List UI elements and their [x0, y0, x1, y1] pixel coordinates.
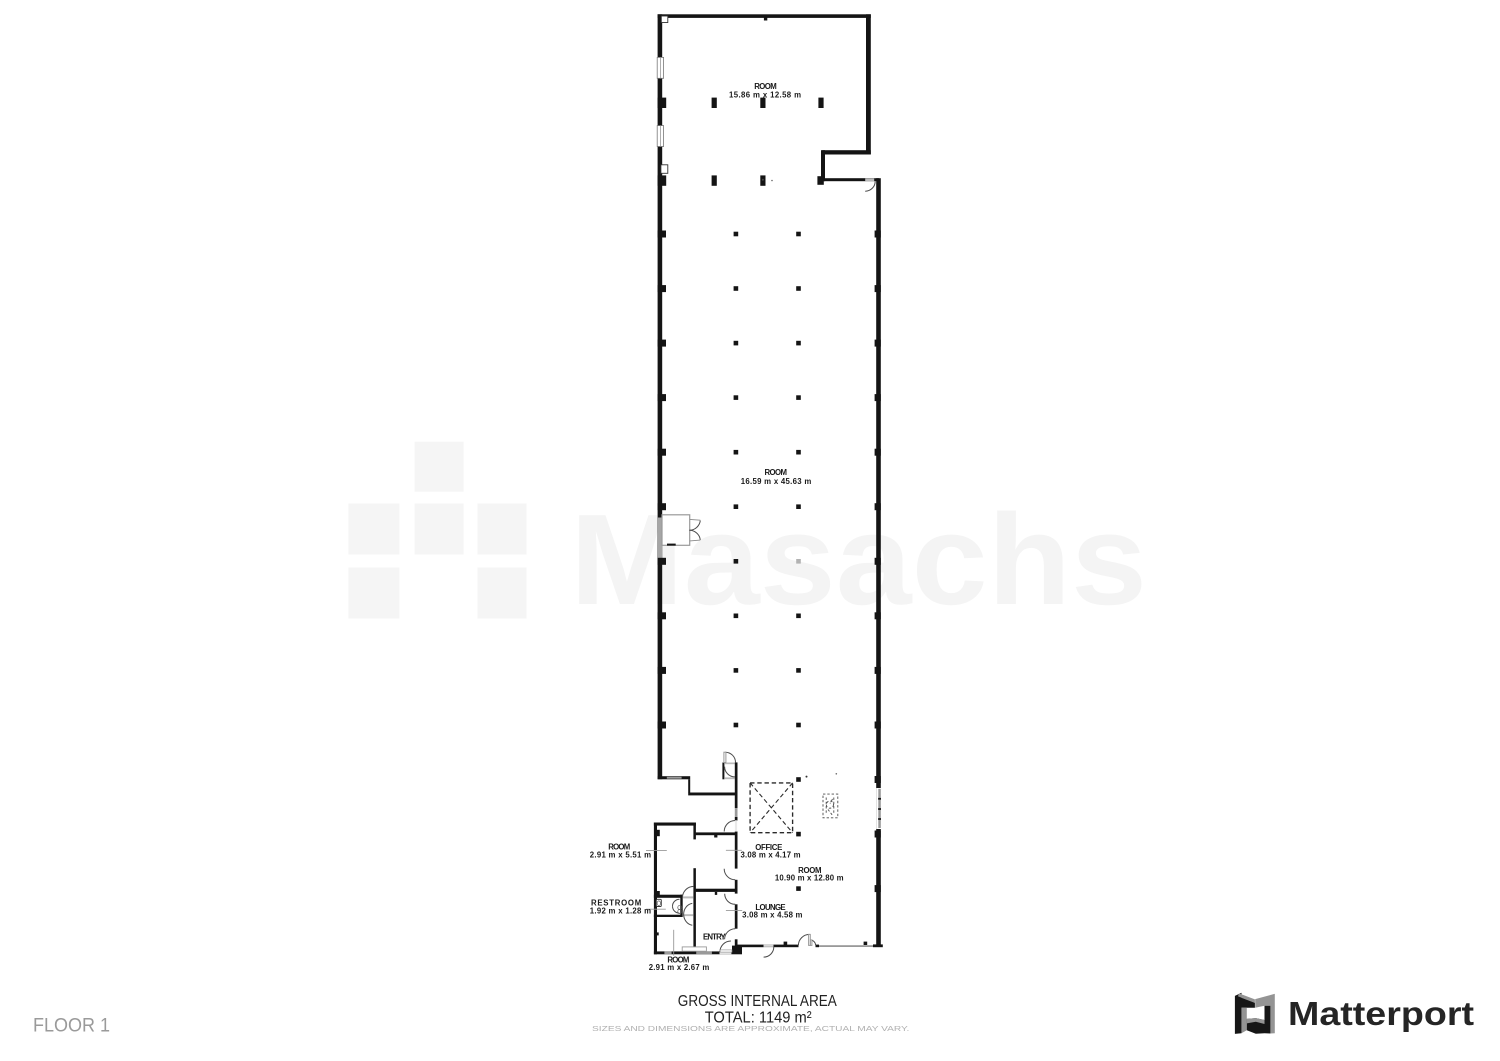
svg-text:2.91 m x 2.67 m: 2.91 m x 2.67 m: [649, 963, 710, 972]
svg-text:Matterport: Matterport: [1288, 995, 1474, 1032]
svg-text:16.59 m x 45.63 m: 16.59 m x 45.63 m: [741, 477, 812, 486]
svg-text:10.90 m x 12.80 m: 10.90 m x 12.80 m: [775, 874, 844, 883]
svg-text:1.92 m x 1.28 m: 1.92 m x 1.28 m: [590, 907, 651, 916]
svg-text:GROSS INTERNAL AREA: GROSS INTERNAL AREA: [678, 993, 837, 1010]
svg-text:ENTRY: ENTRY: [703, 932, 726, 941]
svg-text:FLOOR 1: FLOOR 1: [33, 1015, 110, 1037]
svg-text:3.08 m x 4.17 m: 3.08 m x 4.17 m: [740, 850, 800, 859]
svg-text:2.91 m x 5.51 m: 2.91 m x 5.51 m: [590, 850, 651, 859]
svg-text:ROOM: ROOM: [764, 468, 787, 477]
svg-text:15.86 m x 12.58 m: 15.86 m x 12.58 m: [729, 91, 801, 100]
svg-text:Masachs: Masachs: [570, 488, 1147, 632]
svg-text:SIZES AND DIMENSIONS ARE APPRO: SIZES AND DIMENSIONS ARE APPROXIMATE, AC…: [592, 1024, 909, 1033]
svg-text:3.08 m x 4.58 m: 3.08 m x 4.58 m: [742, 911, 802, 920]
